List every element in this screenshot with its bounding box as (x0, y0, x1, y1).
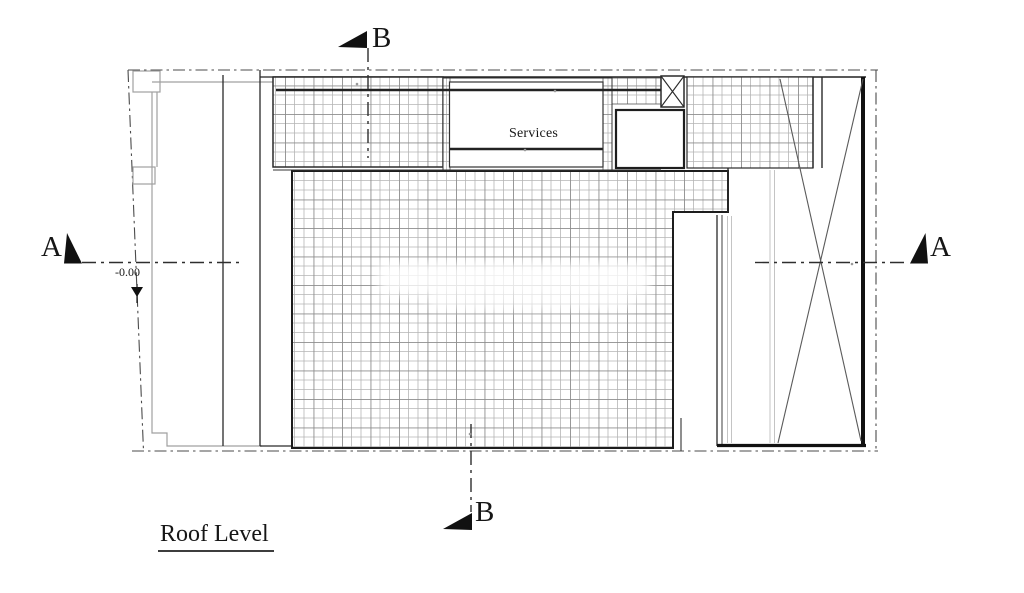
section-marker-a-left-icon (64, 233, 82, 264)
section-label-a-right: A (930, 233, 951, 262)
level-datum-label: -0.00 (115, 266, 140, 278)
hatch-strip-right-of-services (603, 78, 612, 170)
section-label-b-bottom: B (475, 498, 494, 527)
plan-title: Roof Level (158, 522, 274, 552)
section-label-a-left: A (41, 233, 62, 262)
services-room-label: Services (509, 127, 558, 141)
hatch-top-right (687, 77, 813, 168)
core-room (616, 110, 684, 168)
section-label-b-top: B (372, 24, 391, 53)
roof-plan-canvas: B B A A Services -0.00 Roof Level (0, 0, 1024, 593)
lower-level-wall-outline (133, 71, 273, 446)
section-marker-b-bottom-icon (443, 513, 472, 530)
plan-drawing (0, 0, 1024, 593)
section-marker-a-right-icon (910, 233, 928, 264)
hatch-central-roof (292, 171, 728, 448)
section-marker-b-top-icon (338, 31, 367, 48)
shaft-x-box (661, 76, 684, 107)
level-marker-icon (131, 284, 143, 303)
